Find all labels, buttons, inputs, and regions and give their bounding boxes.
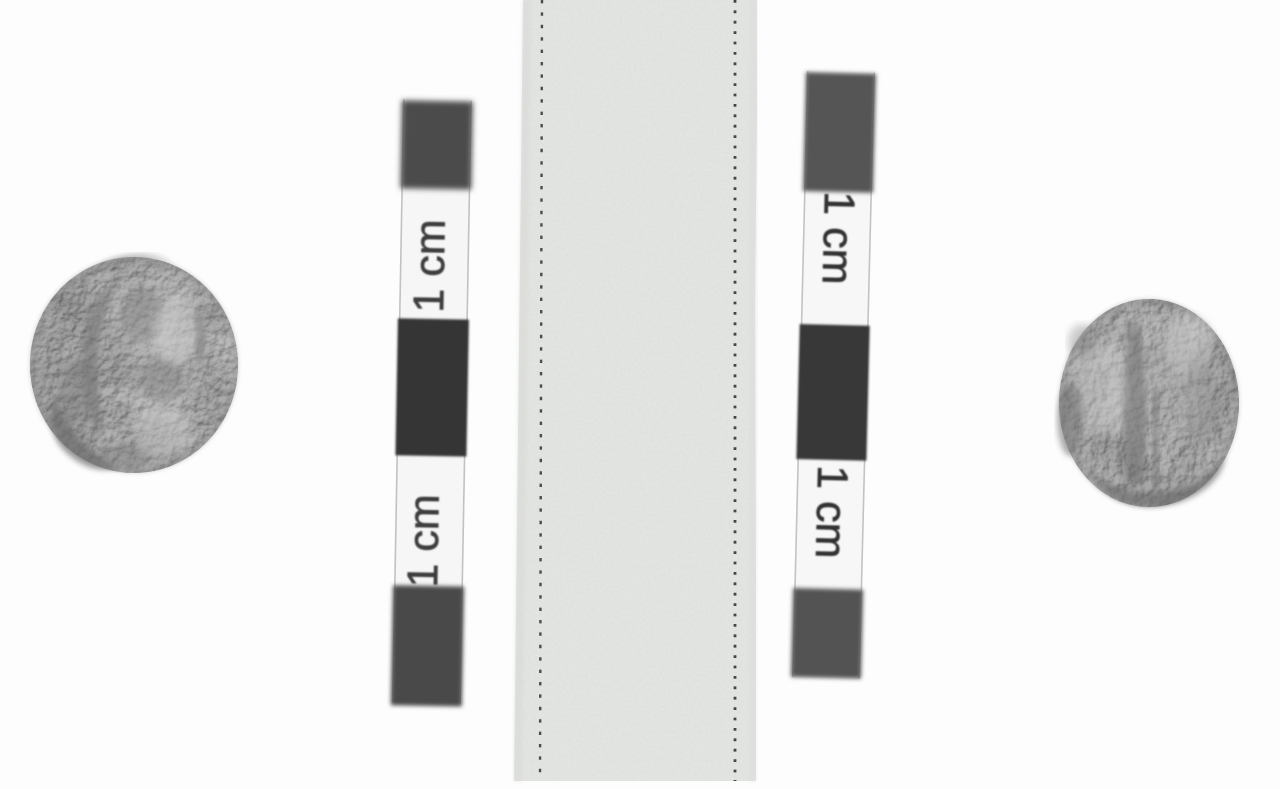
svg-text:1 cm: 1 cm — [399, 494, 449, 588]
svg-text:1 cm: 1 cm — [405, 219, 455, 313]
svg-text:1 cm: 1 cm — [813, 191, 863, 285]
svg-text:1 cm: 1 cm — [806, 465, 856, 559]
